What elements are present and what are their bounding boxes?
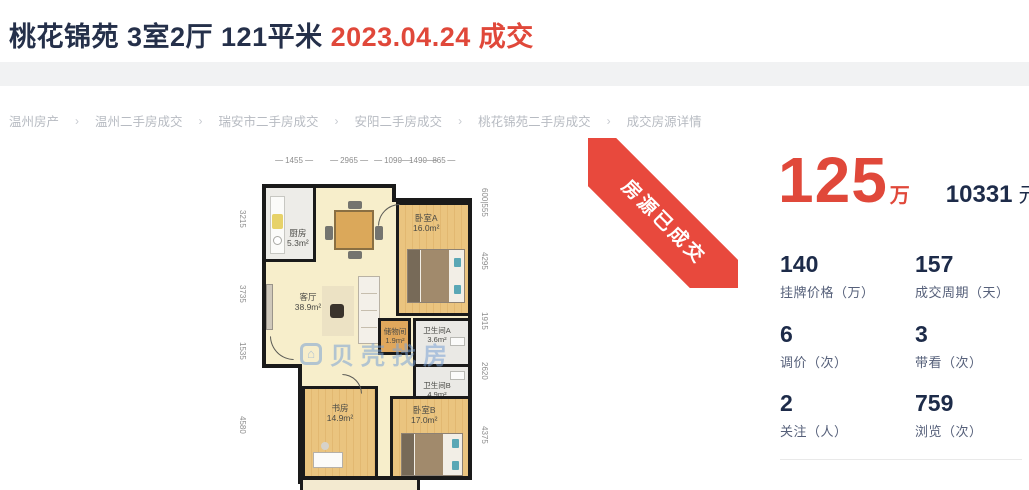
- room-label-bedroom-b: 卧室B 17.0m²: [411, 405, 437, 425]
- dimension-label: 4375: [480, 426, 489, 444]
- desk: [313, 452, 343, 468]
- room-label-storage: 储物间 1.9m²: [382, 327, 408, 345]
- dimension-label: 865: [420, 156, 457, 165]
- breadcrumb: 温州房产 › 温州二手房成交 › 瑞安市二手房成交 › 安阳二手房成交 › 桃花…: [9, 111, 702, 130]
- page-title-main: 桃花锦苑 3室2厅 121平米: [9, 22, 323, 52]
- dimension-label: 1535: [238, 342, 247, 360]
- chair: [348, 201, 362, 209]
- stat-views: 759 浏览（次）: [915, 391, 1029, 440]
- dimension-label: 2965: [328, 156, 370, 165]
- page-title: 桃花锦苑 3室2厅 121平米2023.04.24 成交: [9, 15, 534, 54]
- dimension-label: 1455: [273, 156, 315, 165]
- room-label-bathroom-a: 卫生间A 3.6m²: [420, 326, 454, 344]
- sold-ribbon-band: 房源已成交: [588, 138, 738, 288]
- room-label-living: 客厅 38.9m²: [284, 292, 332, 312]
- stat-showings: 3 带看（次）: [915, 322, 1029, 371]
- stove-icon: [272, 214, 283, 229]
- chair: [348, 251, 362, 259]
- room-study: 书房 14.9m²: [302, 386, 378, 476]
- balcony-sliver: [300, 480, 420, 490]
- door-arc-icon: [342, 374, 362, 394]
- plan-notch: [392, 184, 472, 202]
- door-arc-icon: [378, 204, 400, 226]
- panel-divider: [780, 459, 1022, 460]
- dimension-label: 600|555: [480, 188, 489, 217]
- tv-cabinet: [266, 284, 273, 330]
- sink-icon: [273, 236, 282, 245]
- room-storage: 储物间 1.9m²: [378, 318, 411, 355]
- room-label-study: 书房 14.9m²: [319, 403, 361, 423]
- dimension-label: 1915: [480, 312, 489, 330]
- deal-price-per-sqm: 10331: [946, 181, 1013, 209]
- chevron-right-icon: ›: [607, 114, 611, 128]
- floorplan-body: 厨房 5.3m² 客厅 38.9m² 卧室A: [262, 184, 472, 480]
- room-bedroom-a: 卧室A 16.0m²: [396, 202, 468, 316]
- breadcrumb-item-area-deals[interactable]: 安阳二手房成交: [355, 111, 443, 130]
- sofa: [358, 276, 380, 344]
- chair: [325, 226, 333, 240]
- stat-deal-cycle: 157 成交周期（天）: [915, 252, 1029, 301]
- breadcrumb-item-city-deals[interactable]: 温州二手房成交: [95, 111, 183, 130]
- breadcrumb-item-current: 成交房源详情: [627, 111, 702, 130]
- stat-price-adjustments: 6 调价（次）: [780, 322, 910, 371]
- room-label-kitchen: 厨房 5.3m²: [287, 228, 309, 248]
- chair: [375, 226, 383, 240]
- chevron-right-icon: ›: [458, 114, 462, 128]
- dimension-label: 3215: [238, 210, 247, 228]
- room-bathrooms: 卫生间A 3.6m² 卫生间B 4.9m²: [413, 318, 468, 408]
- title-bar: 桃花锦苑 3室2厅 121平米2023.04.24 成交: [0, 0, 1029, 62]
- section-divider-band: [0, 62, 1029, 86]
- plan-cutout: [262, 364, 302, 484]
- deal-price-per-sqm-unit: 元/平: [1019, 179, 1029, 209]
- dimension-label: 4295: [480, 252, 489, 270]
- chevron-right-icon: ›: [199, 114, 203, 128]
- room-label-bedroom-a: 卧室A 16.0m²: [413, 213, 439, 233]
- breadcrumb-item-community-deals[interactable]: 桃花锦苑二手房成交: [478, 111, 591, 130]
- breadcrumb-item-city[interactable]: 温州房产: [9, 111, 59, 130]
- deal-detail-page: 桃花锦苑 3室2厅 121平米2023.04.24 成交 温州房产 › 温州二手…: [0, 0, 1029, 490]
- wall: [416, 364, 468, 367]
- breadcrumb-item-district-deals[interactable]: 瑞安市二手房成交: [219, 111, 319, 130]
- dining-table: [334, 210, 374, 250]
- deal-date-badge: 2023.04.24 成交: [331, 22, 534, 52]
- dimension-label: 3735: [238, 285, 247, 303]
- sold-ribbon: 房源已成交: [588, 138, 738, 288]
- bed: [407, 249, 465, 303]
- bath-fixture: [450, 337, 465, 346]
- floorplan-image: 1455 2965 1090 1490 865 3215 3735 1535 4…: [230, 148, 520, 490]
- deal-price-total: 125: [778, 148, 888, 212]
- dimension-label: 4580: [238, 416, 247, 434]
- deal-price-total-unit: 万: [890, 179, 910, 208]
- stat-followers: 2 关注（人）: [780, 391, 910, 440]
- coffee-table: [330, 304, 344, 318]
- bath-fixture: [450, 371, 465, 380]
- door-arc-icon: [270, 336, 294, 360]
- chair: [321, 442, 329, 450]
- price-row: 125 万 10331 元/平: [778, 148, 1029, 212]
- dimension-label: 2620: [480, 362, 489, 380]
- stat-listing-price: 140 挂牌价格（万）: [780, 252, 910, 301]
- chevron-right-icon: ›: [335, 114, 339, 128]
- room-bedroom-b: 卧室B 17.0m²: [390, 396, 468, 476]
- room-kitchen: 厨房 5.3m²: [266, 188, 316, 262]
- chevron-right-icon: ›: [75, 114, 79, 128]
- bed: [401, 433, 463, 476]
